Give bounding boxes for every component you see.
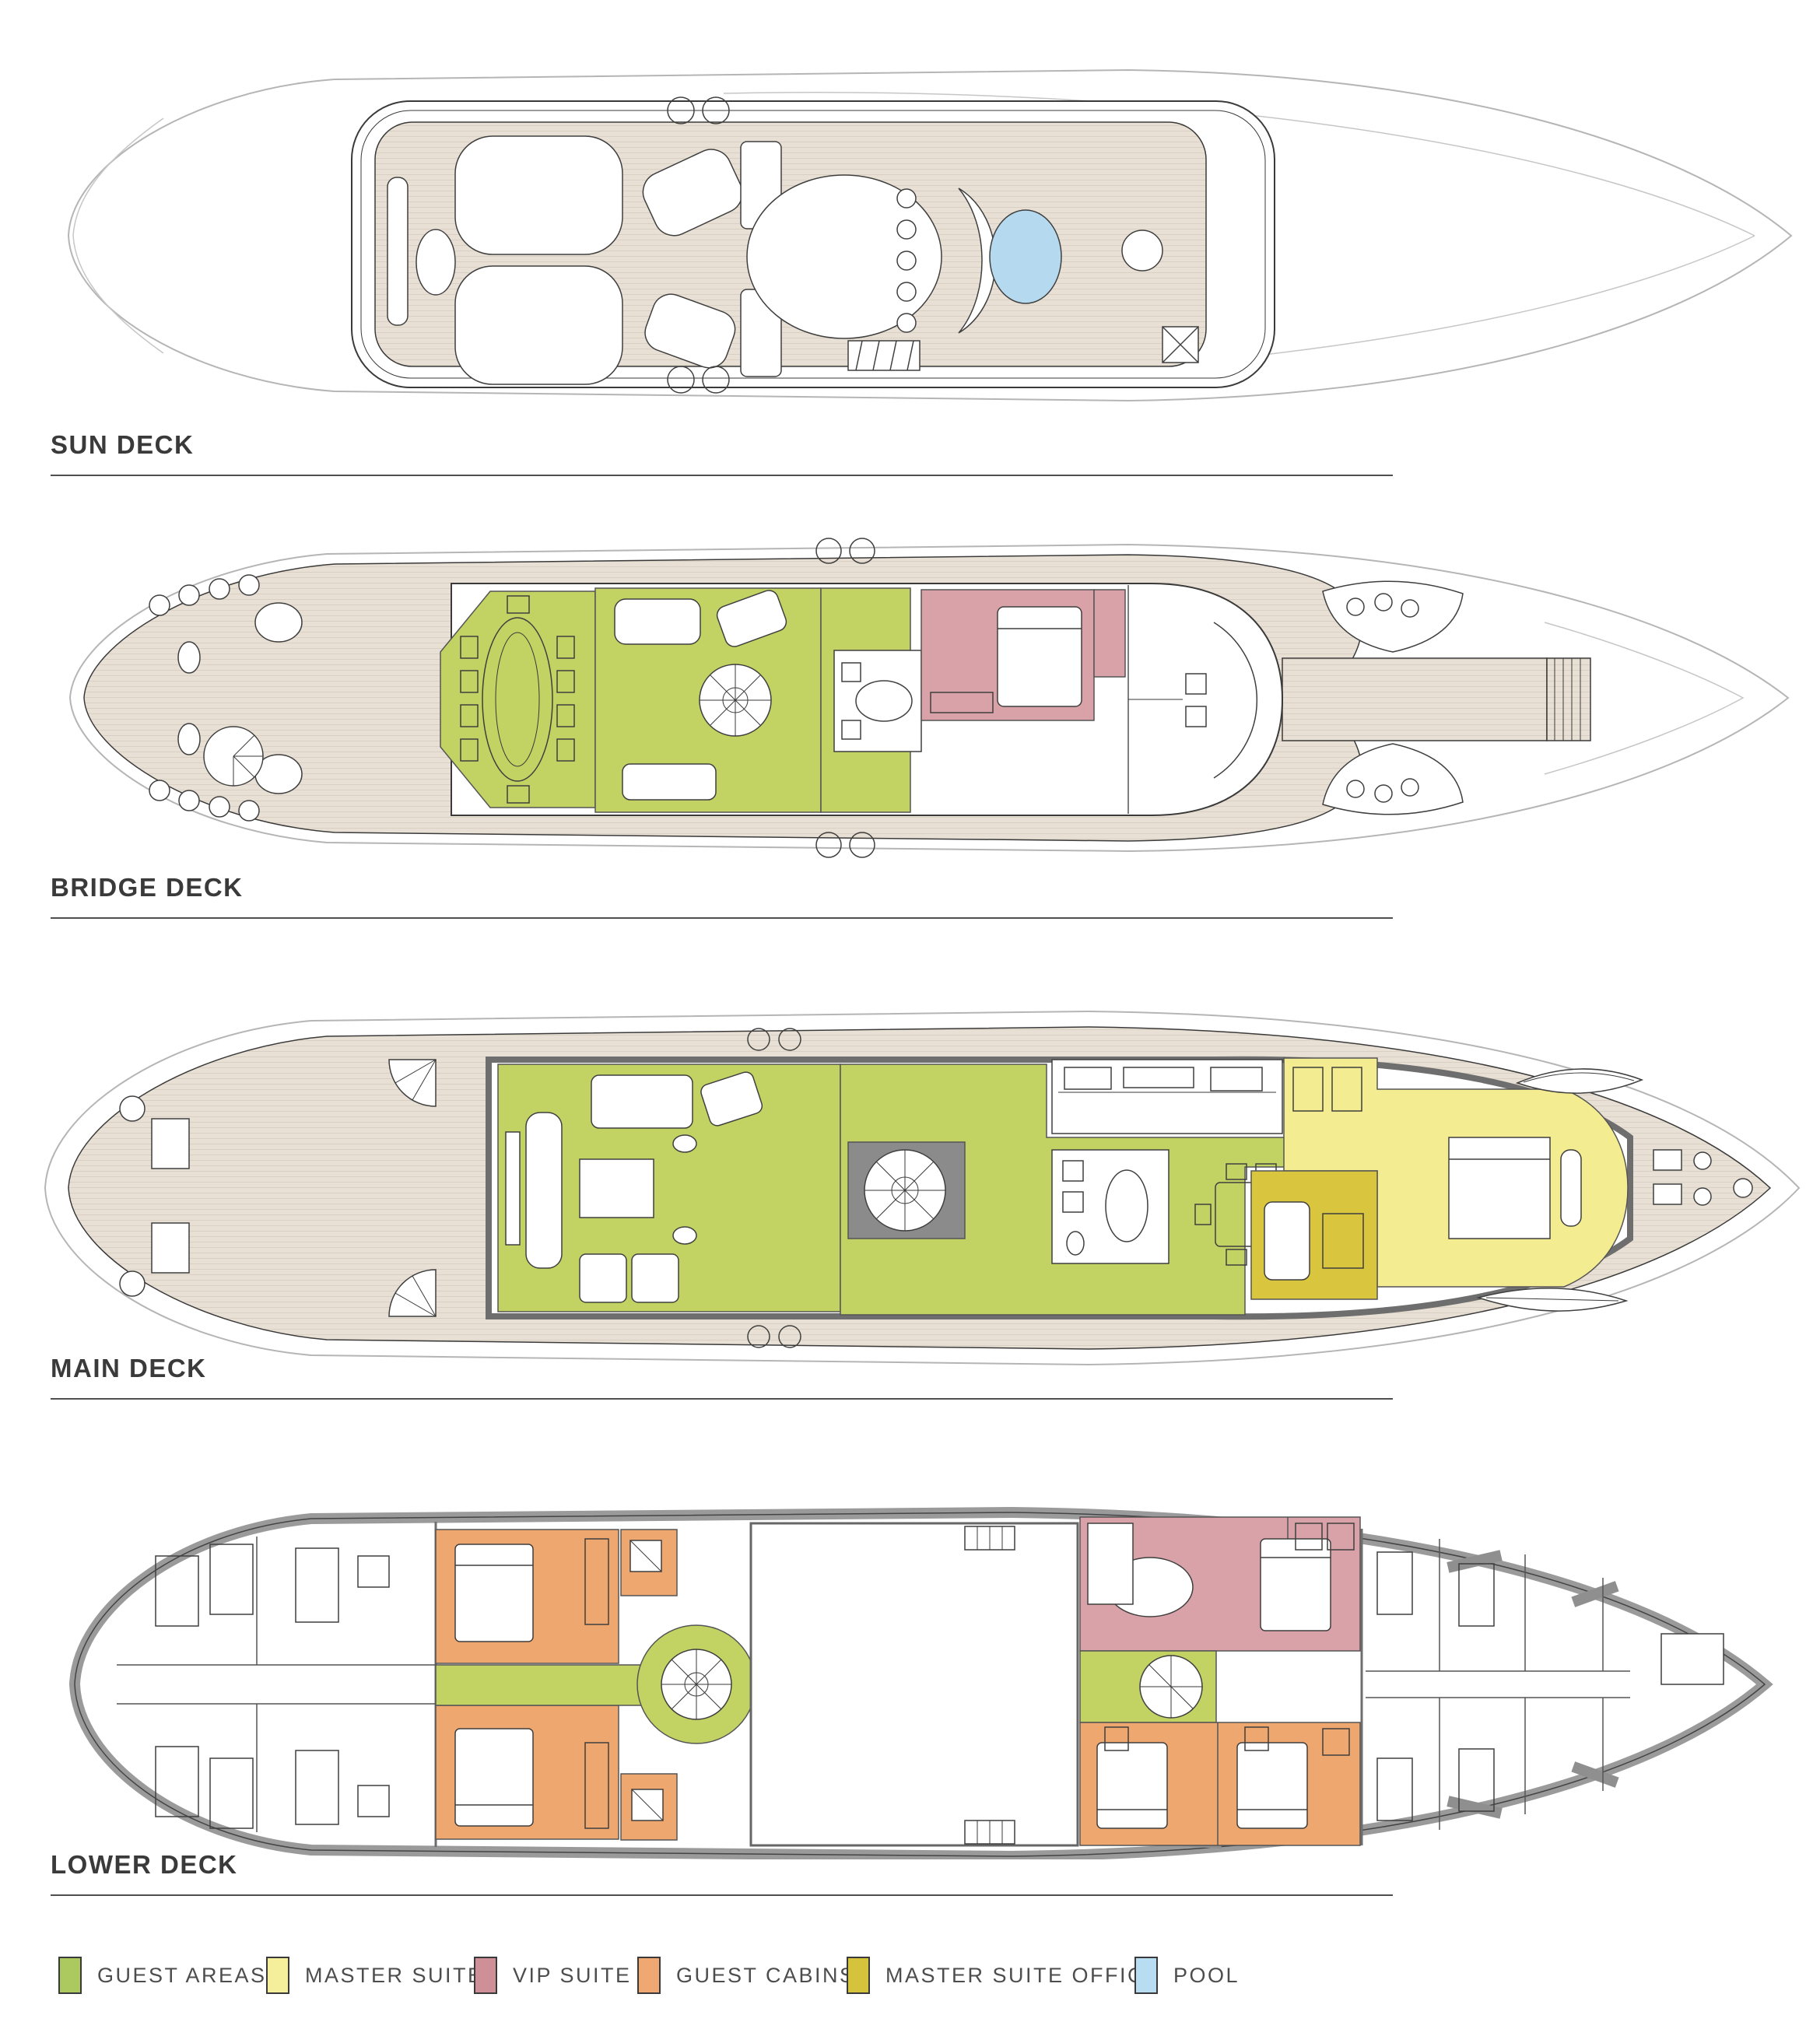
- guest-areas-swatch: [58, 1957, 82, 1994]
- legend: GUEST AREAS MASTER SUITE VIP SUITE GUEST…: [0, 1956, 1820, 2003]
- lower-deck-vip-suite: [1080, 1517, 1360, 1651]
- guest-cabins-swatch: [637, 1957, 661, 1994]
- main-deck-plan: [0, 1000, 1820, 1377]
- lower-deck-divider: [51, 1894, 1393, 1896]
- vip-bathroom: [1094, 590, 1125, 677]
- legend-item-vip-suite: VIP SUITE: [474, 1956, 632, 1995]
- lower-deck-stair-lobby-right: [1080, 1651, 1216, 1722]
- bridge-deck-title: BRIDGE DECK: [51, 873, 244, 902]
- alfresco-dining-room: [440, 591, 595, 808]
- bow-walkway: [1282, 658, 1547, 741]
- deck-plan-page: SUN DECK BRIDGE DECK MAIN DECK LOWER DEC…: [0, 0, 1820, 2022]
- legend-label: VIP SUITE: [513, 1964, 632, 1988]
- funnel-icon: [1122, 230, 1162, 271]
- vip-bed: [998, 607, 1082, 706]
- legend-label: MASTER SUITE OFFICE: [885, 1964, 1161, 1988]
- master-suite-swatch: [266, 1957, 289, 1994]
- main-deck-divider: [51, 1398, 1393, 1400]
- legend-item-pool: POOL: [1134, 1956, 1240, 1995]
- bridge-deck-vip-suite: [921, 590, 1125, 720]
- lower-deck-guest-cabins-right: [1080, 1722, 1360, 1845]
- bridge-deck-divider: [51, 917, 1393, 919]
- lower-deck-title: LOWER DECK: [51, 1850, 238, 1880]
- legend-item-master-suite: MASTER SUITE: [266, 1956, 484, 1995]
- main-deck-title: MAIN DECK: [51, 1354, 207, 1383]
- lower-deck-engine-room: [751, 1523, 1078, 1845]
- main-deck-bathroom: [1052, 1150, 1169, 1263]
- bridge-deck-plan: [0, 529, 1820, 871]
- legend-label: MASTER SUITE: [305, 1964, 484, 1988]
- legend-item-master-suite-office: MASTER SUITE OFFICE: [847, 1956, 1161, 1995]
- legend-item-guest-cabins: GUEST CABINS: [637, 1956, 856, 1995]
- bow-locker: [1661, 1634, 1724, 1684]
- main-deck-master-suite: [1251, 1058, 1628, 1299]
- main-deck-stair: [848, 1142, 965, 1239]
- sun-deck-title: SUN DECK: [51, 430, 194, 460]
- legend-label: GUEST CABINS: [676, 1964, 856, 1988]
- sun-deck-divider: [51, 475, 1393, 476]
- bow-stairs: [1547, 658, 1590, 741]
- legend-label: GUEST AREAS: [97, 1964, 267, 1988]
- legend-label: POOL: [1173, 1964, 1240, 1988]
- main-deck-galley: [1052, 1060, 1282, 1134]
- lower-deck-plan: [0, 1498, 1820, 1859]
- bridge-deck-bathroom: [834, 650, 921, 752]
- vip-suite-swatch: [474, 1957, 497, 1994]
- pool-shape: [990, 210, 1061, 303]
- master-bed: [1449, 1137, 1550, 1239]
- pool-swatch: [1134, 1957, 1158, 1994]
- master-suite-office-swatch: [847, 1957, 870, 1994]
- legend-item-guest-areas: GUEST AREAS: [58, 1956, 267, 1995]
- sun-deck-plan: [0, 62, 1820, 412]
